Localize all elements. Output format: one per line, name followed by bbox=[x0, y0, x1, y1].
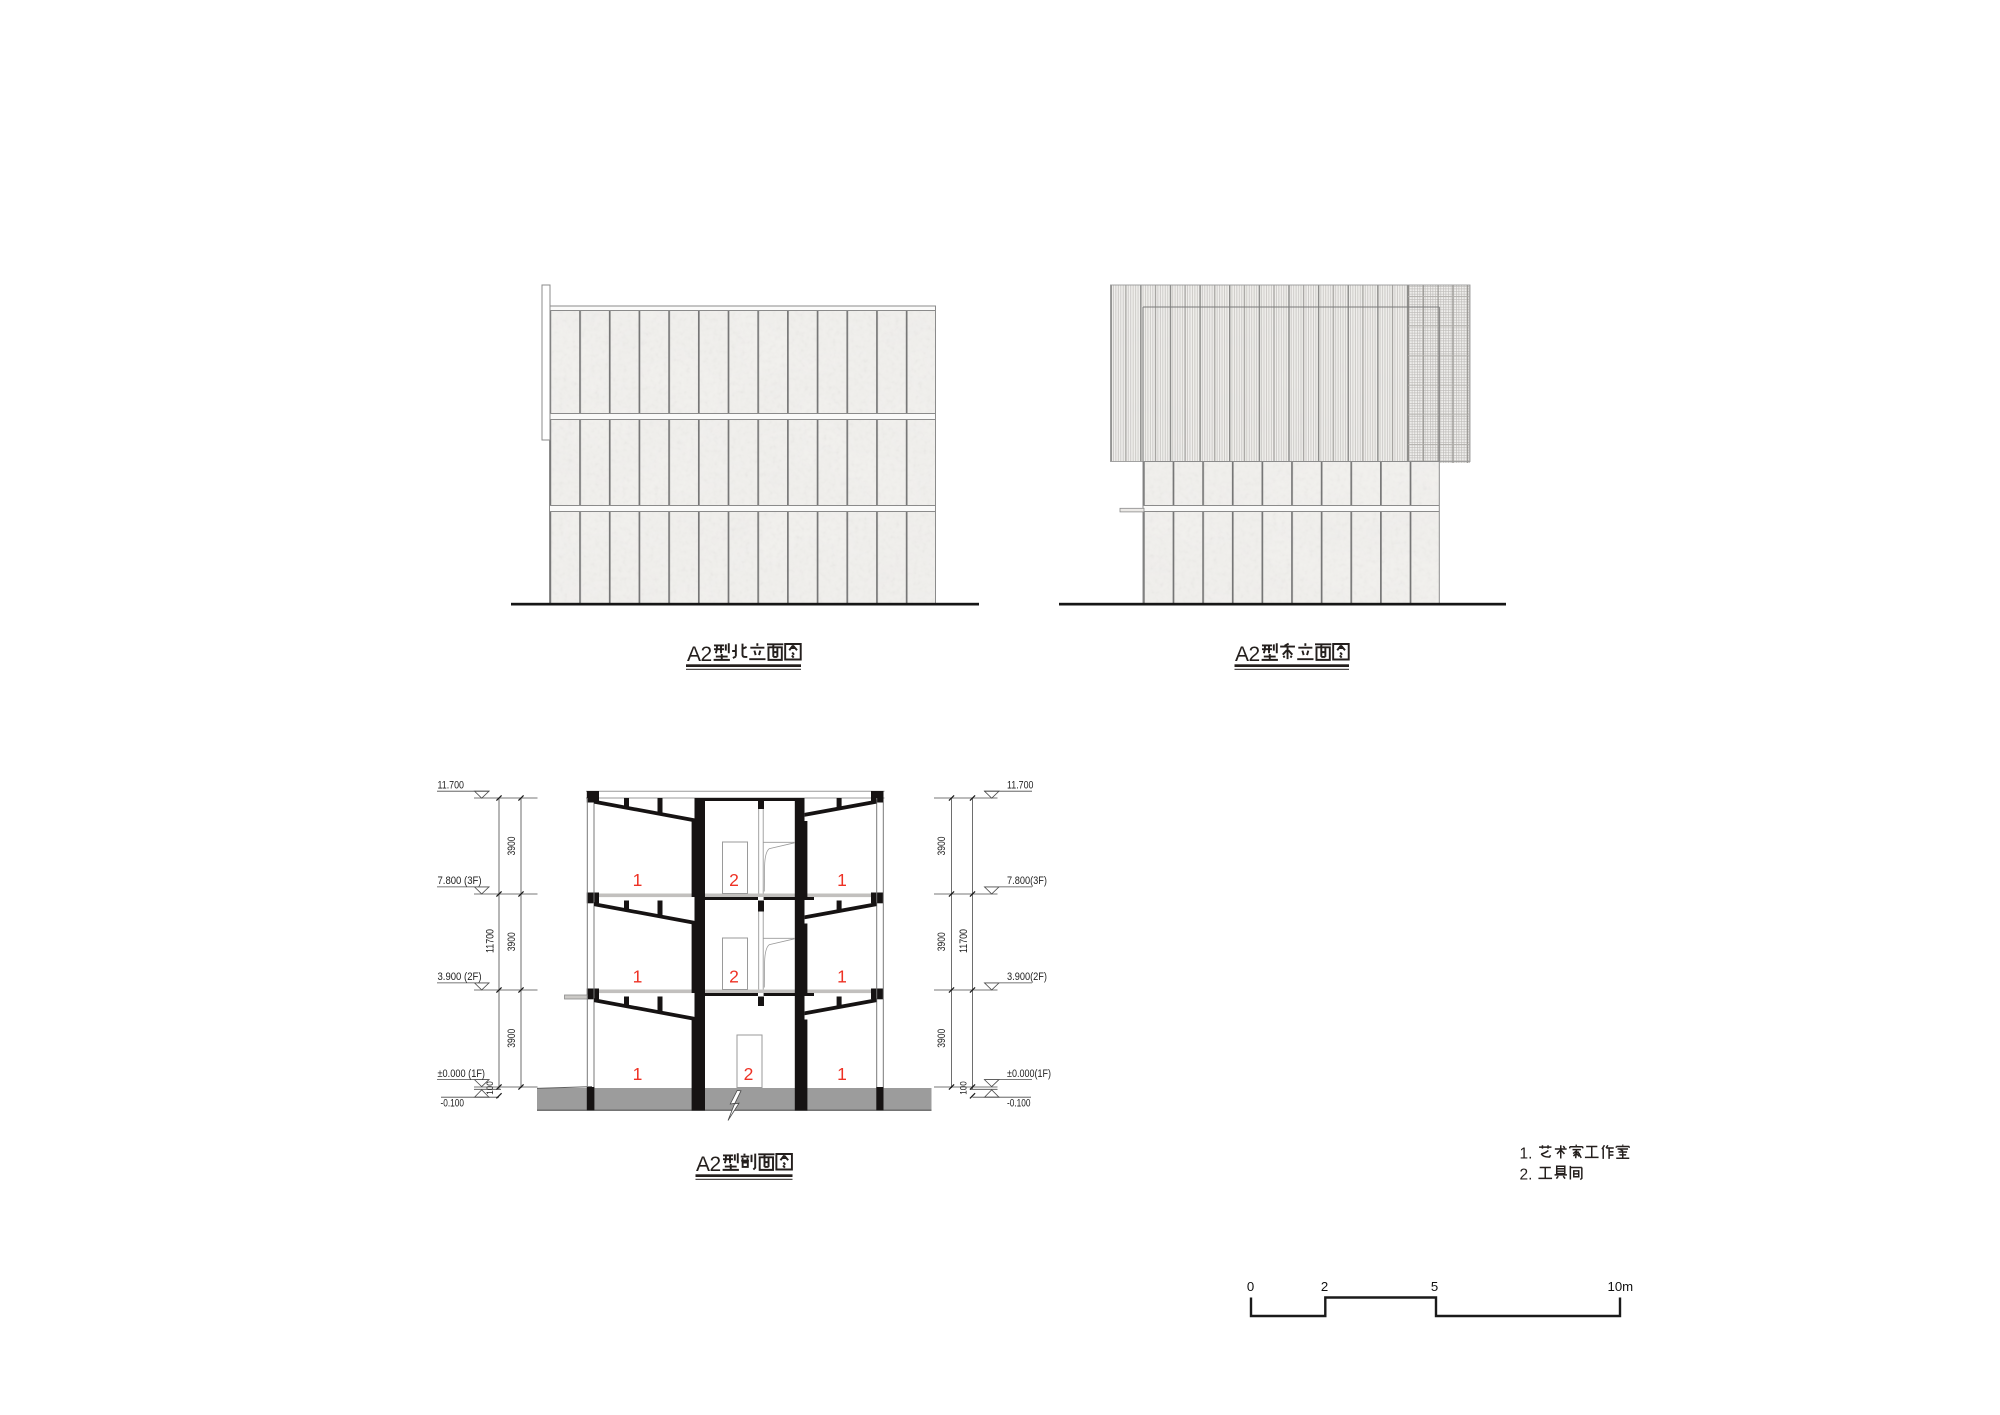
svg-text:10m: 10m bbox=[1608, 1279, 1634, 1294]
svg-text:11.700: 11.700 bbox=[1007, 780, 1034, 792]
svg-text:2: 2 bbox=[1321, 1279, 1328, 1294]
svg-text:100: 100 bbox=[958, 1081, 969, 1095]
svg-text:3900: 3900 bbox=[936, 932, 948, 951]
svg-text:3.900 (2F): 3.900 (2F) bbox=[438, 971, 482, 983]
svg-text:A2: A2 bbox=[696, 1153, 721, 1176]
svg-text:1: 1 bbox=[837, 967, 847, 987]
svg-text:0: 0 bbox=[1247, 1279, 1254, 1294]
svg-text:11700: 11700 bbox=[484, 929, 496, 953]
svg-text:3900: 3900 bbox=[506, 1029, 518, 1048]
svg-text:11.700: 11.700 bbox=[438, 780, 465, 792]
svg-text:3900: 3900 bbox=[936, 1029, 948, 1048]
svg-text:3900: 3900 bbox=[506, 932, 518, 951]
svg-text:7.800(3F): 7.800(3F) bbox=[1007, 875, 1047, 887]
svg-text:1: 1 bbox=[837, 1064, 847, 1084]
svg-text:2: 2 bbox=[729, 870, 739, 890]
svg-text:7.800 (3F): 7.800 (3F) bbox=[438, 875, 482, 887]
svg-text:3.900(2F): 3.900(2F) bbox=[1007, 971, 1047, 983]
svg-text:A2: A2 bbox=[1235, 643, 1260, 666]
svg-text:±0.000 (1F): ±0.000 (1F) bbox=[438, 1068, 486, 1080]
svg-text:2.: 2. bbox=[1520, 1167, 1533, 1184]
svg-text:1: 1 bbox=[633, 1064, 643, 1084]
svg-text:1: 1 bbox=[633, 870, 643, 890]
svg-text:-0.100: -0.100 bbox=[441, 1098, 465, 1110]
svg-text:2: 2 bbox=[744, 1064, 754, 1084]
svg-text:±0.000(1F): ±0.000(1F) bbox=[1007, 1068, 1051, 1080]
svg-text:100: 100 bbox=[485, 1081, 496, 1095]
svg-text:3900: 3900 bbox=[506, 836, 518, 855]
svg-text:11700: 11700 bbox=[958, 929, 970, 953]
svg-text:1.: 1. bbox=[1520, 1146, 1533, 1163]
svg-text:-0.100: -0.100 bbox=[1007, 1098, 1031, 1110]
svg-text:1: 1 bbox=[633, 967, 643, 987]
svg-text:1: 1 bbox=[837, 870, 847, 890]
svg-text:5: 5 bbox=[1431, 1279, 1438, 1294]
svg-text:A2: A2 bbox=[687, 643, 712, 666]
svg-text:3900: 3900 bbox=[936, 836, 948, 855]
svg-text:2: 2 bbox=[729, 967, 739, 987]
